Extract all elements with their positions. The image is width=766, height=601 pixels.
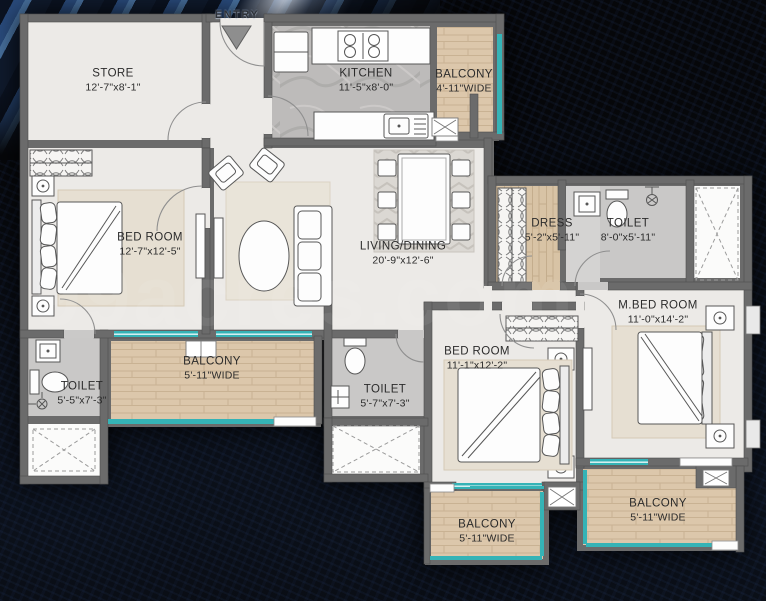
bed-icon: [32, 200, 122, 294]
room-dims: 11'-1"x12'-2": [444, 359, 510, 373]
room-name: BALCONY: [183, 356, 241, 370]
sofa-icon: [294, 206, 332, 306]
room-dims: 5'-11"WIDE: [183, 369, 241, 383]
room-dims: 20'-9"x12'-6": [360, 254, 446, 268]
wardrobe-icon: [498, 188, 526, 282]
washbasin-icon: [36, 340, 60, 362]
room-dims: 5'-11"WIDE: [629, 511, 687, 525]
washbasin-icon: [574, 192, 600, 216]
tv-unit-icon: [196, 214, 205, 278]
room-dims: 11'-5"x8'-0": [339, 81, 394, 95]
console-icon: [214, 218, 223, 278]
room-dims: 5'-7"x7'-3": [360, 397, 409, 411]
room-dims: 5'-5"x7'-3": [57, 394, 106, 408]
room-name: STORE: [85, 68, 140, 82]
room-name: BED ROOM: [117, 232, 183, 246]
room-name: BALCONY: [629, 498, 687, 512]
room-name: DRESS: [525, 218, 580, 232]
room-label-balcony-br: BALCONY 5'-11"WIDE: [629, 498, 687, 525]
room-name: BED ROOM: [444, 346, 510, 360]
room-name: BALCONY: [435, 69, 493, 83]
room-label-toilet-left: TOILET 5'-5"x7'-3": [57, 381, 106, 408]
nightstand-icon: [32, 176, 54, 196]
room-dims: 5'-2"x5'-11": [525, 231, 580, 245]
room-label-living: LIVING/DINING 20'-9"x12'-6": [360, 241, 446, 268]
room-label-store: STORE 12'-7"x8'-1": [85, 68, 140, 95]
room-label-kitchen-balcony: BALCONY 4'-11"WIDE: [435, 69, 493, 96]
bed-icon: [458, 366, 569, 464]
room-label-kitchen: KITCHEN 11'-5"x8'-0": [339, 68, 394, 95]
entry-label: ENTRY: [215, 9, 259, 21]
washbasin-icon: [331, 386, 349, 408]
room-dims: 11'-0"x14'-2": [618, 313, 697, 327]
room-label-toilet-top: TOILET 8'-0"x5'-11": [601, 218, 656, 245]
nightstand-icon: [706, 424, 734, 448]
room-name: TOILET: [601, 218, 656, 232]
room-label-balcony-bc: BALCONY 5'-11"WIDE: [458, 519, 516, 546]
wardrobe-icon: [506, 316, 578, 341]
room-label-bedroom1: BED ROOM 12'-7"x12'-5": [117, 232, 183, 259]
room-name: KITCHEN: [339, 68, 394, 82]
room-label-balcony-left: BALCONY 5'-11"WIDE: [183, 356, 241, 383]
room-name: M.BED ROOM: [618, 300, 697, 314]
room-name: BALCONY: [458, 519, 516, 533]
room-dims: 4'-11"WIDE: [435, 82, 493, 96]
nightstand-icon: [32, 296, 54, 316]
room-label-bedroom2: BED ROOM 11'-1"x12'-2": [444, 346, 510, 373]
room-dims: 5'-11"WIDE: [458, 532, 516, 546]
floorplan-canvas: 99acres.com ENTRY STORE 12'-7"x8'-1" KIT…: [0, 0, 766, 601]
room-dims: 8'-0"x5'-11": [601, 231, 656, 245]
room-label-toilet-mid: TOILET 5'-7"x7'-3": [360, 384, 409, 411]
room-name: TOILET: [360, 384, 409, 398]
stove-icon: [338, 31, 388, 61]
tv-unit-icon: [583, 348, 592, 410]
room-dims: 12'-7"x8'-1": [85, 81, 140, 95]
room-dims: 12'-7"x12'-5": [117, 245, 183, 259]
bed-icon: [638, 332, 712, 424]
fridge-icon: [274, 32, 308, 72]
room-label-dress: DRESS 5'-2"x5'-11": [525, 218, 580, 245]
room-name: LIVING/DINING: [360, 241, 446, 255]
sink-icon: [384, 114, 428, 138]
room-label-mbedroom: M.BED ROOM 11'-0"x14'-2": [618, 300, 697, 327]
nightstand-icon: [706, 306, 734, 330]
toilet-wc-icon: [344, 338, 366, 374]
room-name: TOILET: [57, 381, 106, 395]
coffee-table-icon: [239, 221, 289, 291]
dining-set-icon: [374, 150, 474, 252]
wardrobe-icon: [30, 150, 92, 176]
